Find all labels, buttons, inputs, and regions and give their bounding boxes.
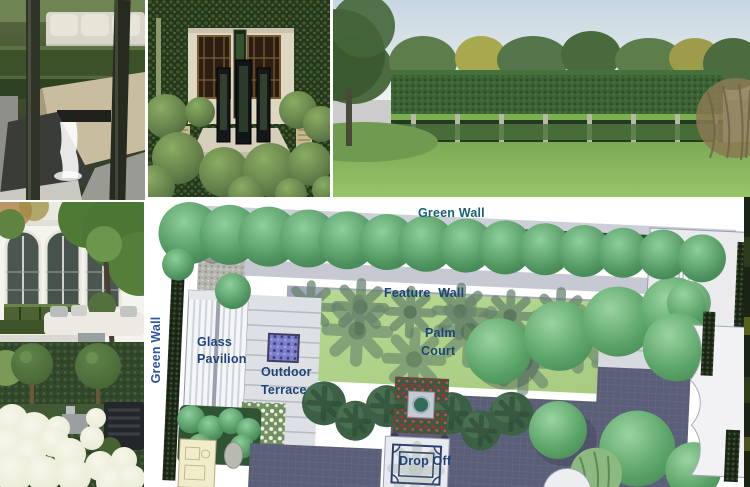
waterfall xyxy=(60,122,79,178)
photo-water-feature-art xyxy=(0,0,145,200)
label-green-wall-top: Green Wall xyxy=(418,204,485,222)
ottoman xyxy=(78,333,105,342)
label-glass-pavilion: Glass Pavilion xyxy=(197,334,247,368)
small-fountain xyxy=(413,396,430,413)
photo-water-feature-garden xyxy=(0,0,145,200)
photo-villa-art xyxy=(0,202,144,342)
photo-white-villa xyxy=(0,202,144,342)
label-feature-wall: Feature Wall xyxy=(384,284,464,302)
photo-sliver-right-edge xyxy=(744,197,750,487)
right-hedge-bar xyxy=(724,430,740,483)
photo-hydrangea-art xyxy=(0,342,144,487)
photo-pleached-hedge-lawn xyxy=(333,0,750,197)
photo-hedge-art xyxy=(333,0,750,197)
label-palm-court: Palm Court xyxy=(421,324,456,360)
pleached-hedge-wall xyxy=(391,70,723,146)
photo-courtyard-art xyxy=(148,0,330,200)
driveway-paving xyxy=(248,443,382,487)
cream-pavilion xyxy=(178,439,216,487)
label-drop-off: Drop Off xyxy=(399,452,451,470)
terrace-paving xyxy=(0,335,78,342)
label-green-wall-left: Green Wall xyxy=(147,317,165,384)
black-lanterns xyxy=(217,60,270,144)
photo-boxwood-courtyard xyxy=(148,0,330,200)
photo-hydrangea-garden xyxy=(0,342,144,487)
purple-bed xyxy=(268,334,299,362)
garden-design-board: Green Wall Green Wall Feature Wall Palm … xyxy=(0,0,750,487)
label-outdoor-terrace: Outdoor Terrace xyxy=(261,363,312,399)
